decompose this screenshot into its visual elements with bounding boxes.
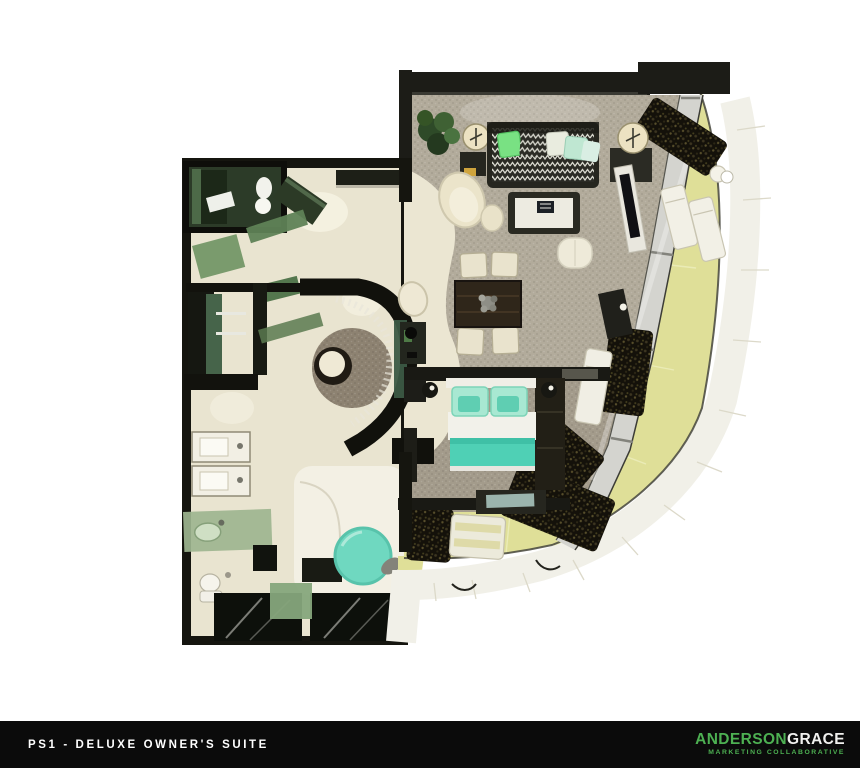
wc-toilet-seat bbox=[255, 198, 271, 214]
sofa-pillow bbox=[497, 131, 522, 158]
wc-toilet bbox=[256, 177, 272, 199]
left-wall-lower bbox=[399, 452, 412, 552]
light-pool bbox=[210, 392, 254, 424]
footer-bar: PS1 - DELUXE OWNER'S SUITE ANDERSONGRACE… bbox=[0, 721, 860, 768]
floorplan-render bbox=[0, 0, 860, 721]
desk-lamp bbox=[405, 327, 417, 339]
ottoman-stool bbox=[481, 205, 503, 231]
left-wall-upper bbox=[399, 70, 412, 172]
closet-wall bbox=[184, 374, 258, 390]
plan-code-label: PS1 - DELUXE OWNER'S SUITE bbox=[0, 739, 269, 751]
wall-sconce bbox=[422, 382, 438, 398]
brand-name: ANDERSONGRACE bbox=[695, 732, 845, 748]
bathtub-area bbox=[294, 466, 406, 596]
hedge-planter bbox=[406, 506, 454, 563]
top-right-wall-block bbox=[638, 62, 730, 94]
left-wall-stub bbox=[399, 158, 412, 202]
sofa-pillow bbox=[581, 140, 601, 163]
green-glass-divider bbox=[270, 583, 312, 619]
dining-chair bbox=[460, 253, 487, 278]
closet-wall bbox=[186, 283, 302, 292]
wc-room bbox=[186, 164, 284, 230]
brand-tagline: MARKETING COLLABORATIVE bbox=[695, 750, 845, 757]
table-centerpiece bbox=[479, 295, 498, 313]
dining-chair bbox=[491, 252, 518, 277]
round-stool bbox=[319, 351, 345, 377]
coffee-table bbox=[508, 192, 580, 234]
wall-light bbox=[721, 171, 733, 183]
suite-floorplan-svg bbox=[0, 0, 860, 721]
towel-shelf bbox=[216, 332, 246, 335]
partition-door bbox=[562, 369, 598, 379]
entry-closet-edge bbox=[336, 185, 408, 188]
brochure-page: PS1 - DELUXE OWNER'S SUITE ANDERSONGRACE… bbox=[0, 0, 860, 768]
double-lounger bbox=[449, 514, 506, 560]
console-glass bbox=[486, 493, 534, 508]
sofa bbox=[487, 122, 601, 188]
dining-chair bbox=[457, 328, 484, 355]
towel-shelf bbox=[216, 312, 246, 315]
top-wall bbox=[400, 72, 650, 95]
round-tub bbox=[335, 528, 391, 584]
sofa-pillow bbox=[519, 132, 545, 158]
bath-cabinet-block bbox=[253, 545, 277, 571]
wall-sconce bbox=[541, 382, 557, 398]
brand-name-primary: ANDERSON bbox=[695, 731, 787, 748]
brand-name-secondary: GRACE bbox=[787, 731, 845, 748]
brand-logo: ANDERSONGRACE MARKETING COLLABORATIVE bbox=[695, 732, 860, 756]
bed bbox=[446, 378, 536, 471]
dining-chair bbox=[492, 327, 519, 354]
wc-counter bbox=[192, 169, 201, 224]
